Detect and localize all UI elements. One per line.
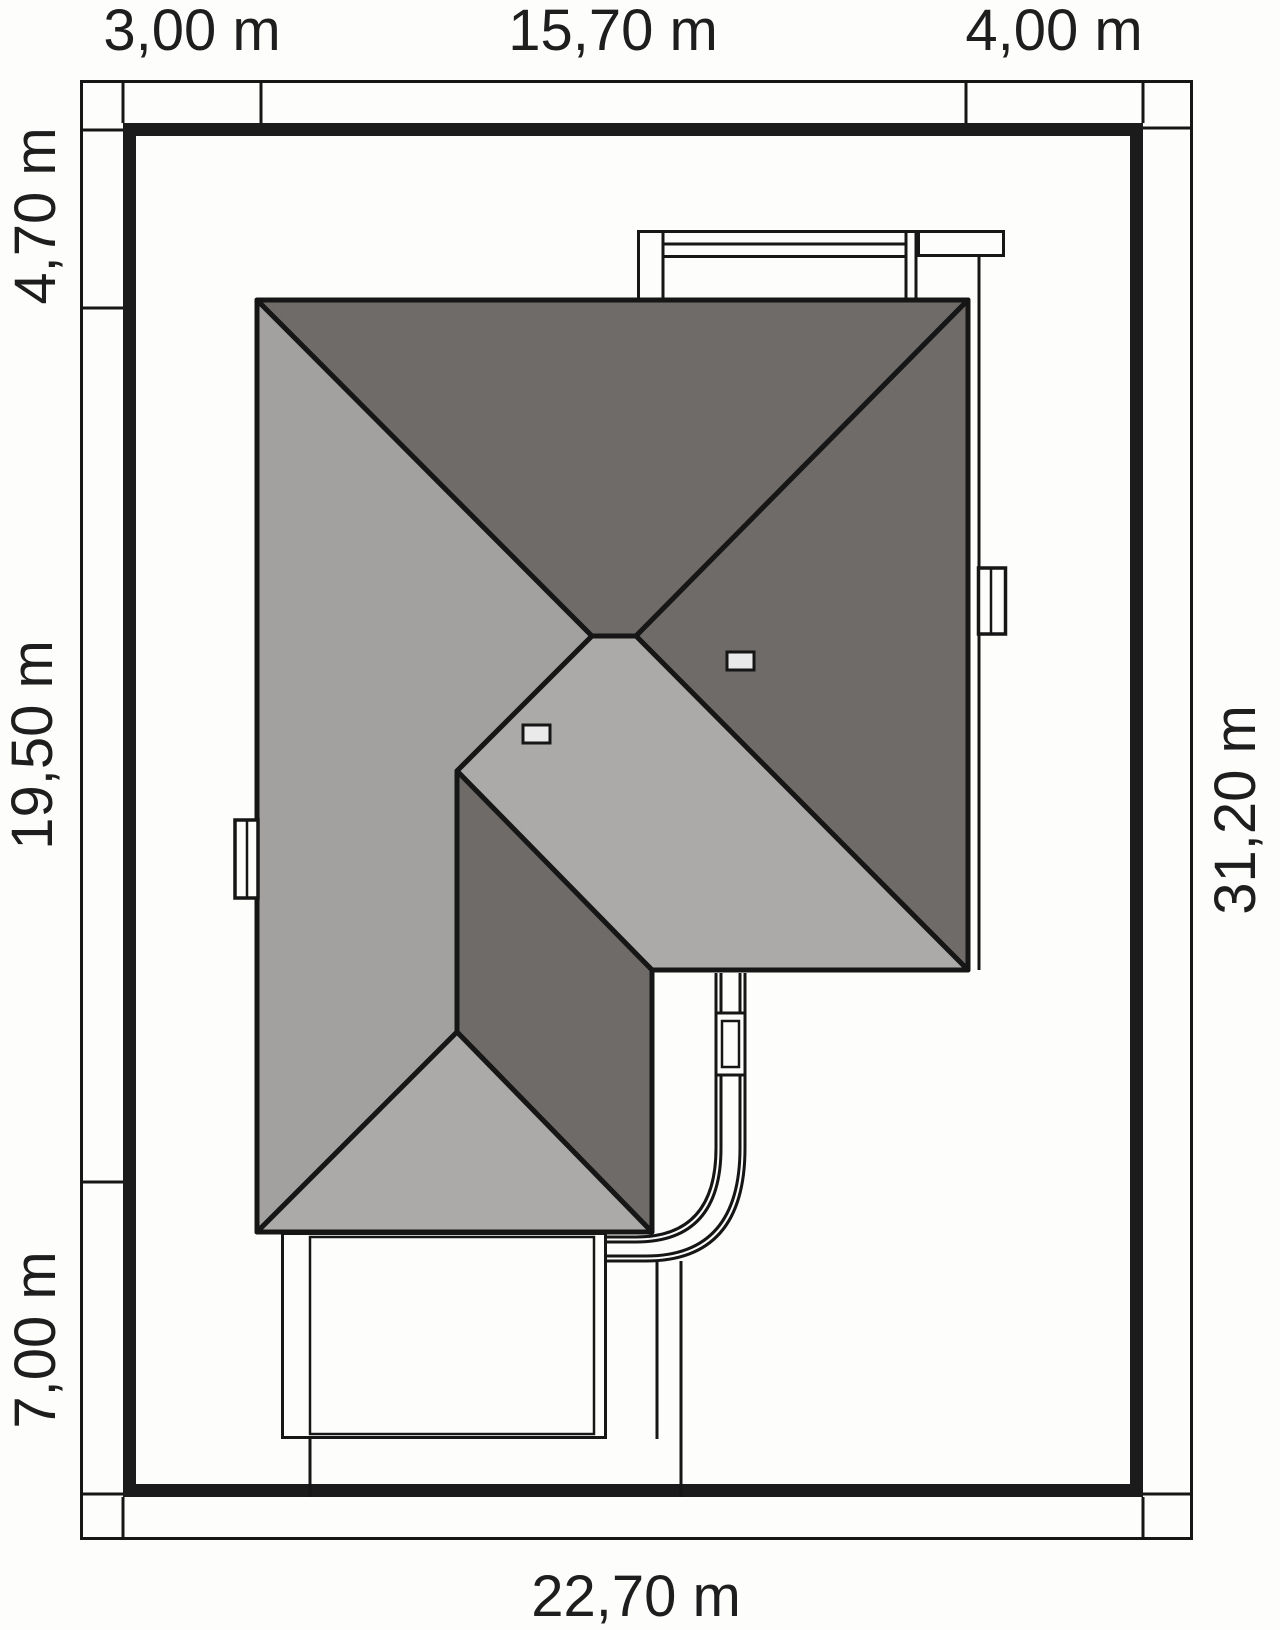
dim-ticks-bottom xyxy=(123,1497,1143,1540)
pergola-left-post xyxy=(639,232,664,301)
driveway xyxy=(283,1234,606,1498)
pergola-right-post xyxy=(906,232,916,301)
dim-label-top-right: 4,00 m xyxy=(965,2,1142,60)
driveway-outer-edge xyxy=(283,1234,606,1438)
dim-ticks-left xyxy=(80,130,123,1494)
dim-label-top-center: 15,70 m xyxy=(508,2,718,60)
dim-label-left-lower: 7,00 m xyxy=(7,1251,65,1428)
dim-label-top-left: 3,00 m xyxy=(103,2,280,60)
pergola-rails xyxy=(663,232,905,257)
dim-label-left-middle: 19,50 m xyxy=(4,640,62,850)
dim-label-left-upper: 4,70 m xyxy=(7,127,65,304)
driveway-inner-edge xyxy=(310,1237,594,1434)
walkway-lamp-outer xyxy=(716,1013,745,1075)
dim-ticks-right xyxy=(1143,128,1193,1494)
walkway-street-branch xyxy=(657,1261,681,1497)
dim-label-right: 31,20 m xyxy=(1207,705,1265,915)
dim-ticks-top xyxy=(123,80,1143,123)
site-plan-page: 3,00 m 15,70 m 4,00 m 4,70 m 19,50 m 7,0… xyxy=(0,0,1280,1630)
skylight-south xyxy=(523,725,550,743)
house-roof xyxy=(257,300,968,1232)
skylight-east xyxy=(727,652,754,670)
pergola-right-bar xyxy=(919,232,1004,256)
site-plan-drawing xyxy=(0,0,1280,1630)
dim-label-bottom: 22,70 m xyxy=(531,1568,741,1626)
